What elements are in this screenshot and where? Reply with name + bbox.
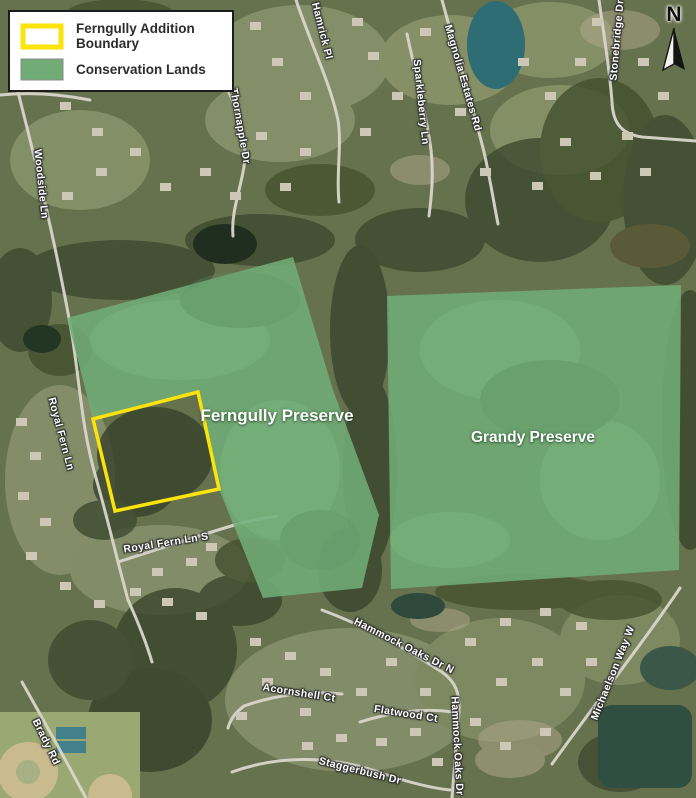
legend-label-conservation-lands: Conservation Lands [76,62,206,77]
satellite-basemap [0,0,696,798]
legend-label-ferngully-addition: Ferngully Addition Boundary [76,21,224,51]
ferngully-preserve-label: Ferngully Preserve [200,406,353,426]
north-arrow-label: N [657,4,691,25]
legend-item-ferngully-addition: Ferngully Addition Boundary [20,21,224,51]
aerial-map: Ferngully Preserve Grandy Preserve Woods… [0,0,696,798]
conservation-swatch-icon [20,58,64,81]
legend: Ferngully Addition Boundary Conservation… [8,10,234,92]
legend-item-conservation-lands: Conservation Lands [20,58,224,81]
grandy-preserve-label: Grandy Preserve [471,429,595,447]
north-arrow: N [657,4,691,72]
boundary-swatch-icon [20,23,64,50]
north-arrow-icon [661,26,687,72]
